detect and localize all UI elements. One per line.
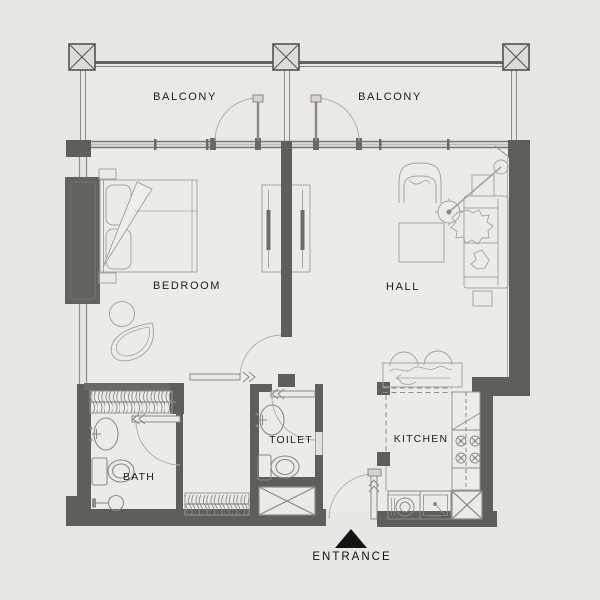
column-middle: [273, 44, 299, 70]
room-label-toilet: TOILET: [269, 434, 313, 446]
entrance-arrow: [335, 529, 367, 548]
room-label-balcony-right: BALCONY: [358, 91, 422, 103]
bath-closet: [90, 391, 176, 413]
room-label-hall: HALL: [386, 281, 420, 293]
toilet-shaft: [259, 487, 315, 515]
room-label-kitchen: KITCHEN: [394, 433, 449, 445]
kitchen-shaft: [452, 491, 482, 519]
partition-wall: [281, 141, 292, 337]
floor-plan: BALCONY BALCONY BEDROOM HALL BATH TOILET…: [0, 0, 600, 600]
column-right: [503, 44, 529, 70]
room-label-bath: BATH: [123, 471, 155, 483]
entrance-label: ENTRANCE: [312, 551, 391, 563]
room-label-balcony-left: BALCONY: [153, 91, 217, 103]
room-label-bedroom: BEDROOM: [153, 280, 221, 292]
hall-closet: [185, 493, 249, 515]
column-left: [69, 44, 95, 70]
floor-plan-drawing: [0, 0, 600, 600]
